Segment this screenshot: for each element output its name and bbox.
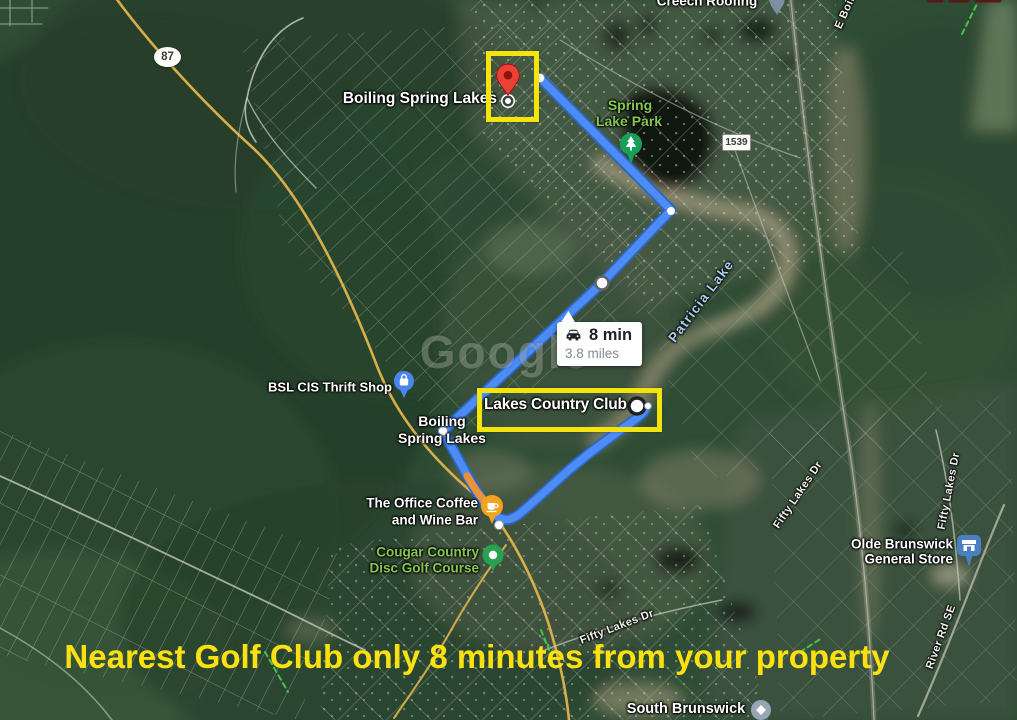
tree-icon [619,132,643,165]
property-highlight-box [486,51,539,122]
diamond-icon [750,699,772,720]
car-icon [564,328,583,343]
spring-lake-park-label-line2[interactable]: Lake Park [596,113,662,129]
disc-golf-label-line2[interactable]: Disc Golf Course [369,561,479,576]
golf-club-highlight-box [477,388,662,432]
coffee-bar-pin[interactable] [480,494,504,536]
coffee-cup-icon [480,494,504,531]
thrift-shop-label[interactable]: BSL CIS Thrift Shop [268,380,392,395]
town-label-line2[interactable]: Spring Lakes [398,430,486,446]
route-info-bubble[interactable]: 8 min 3.8 miles [557,322,642,366]
route-distance: 3.8 miles [565,346,632,361]
general-store-label-line2[interactable]: General Store [864,552,953,567]
route-duration: 8 min [589,326,632,345]
coffee-bar-label-line2[interactable]: and Wine Bar [392,513,478,528]
disc-golf-pin[interactable] [482,544,504,583]
thrift-shop-pin[interactable] [393,370,415,412]
shopping-bag-icon [393,370,415,407]
general-store-label-line1[interactable]: Olde Brunswick [851,537,953,552]
creech-roofing-pin[interactable] [768,0,786,21]
town-label-line1[interactable]: Boiling [418,413,465,429]
place-dot-icon [482,544,504,578]
south-brunswick-pin[interactable] [750,699,772,720]
coffee-bar-label-line1[interactable]: The Office Coffee [366,496,478,511]
satellite-map[interactable]: Boiling Spring Lakes Lakes Country Club … [0,0,1017,720]
route-87-shield: 87 [154,47,181,67]
storefront-icon [956,534,982,570]
general-store-pin[interactable] [956,534,982,575]
south-brunswick-label[interactable]: South Brunswick [627,701,745,717]
marketing-caption: Nearest Golf Club only 8 minutes from yo… [64,638,889,676]
route-1539-shield: 1539 [722,134,751,151]
generic-pin-icon [768,0,786,16]
spring-lake-park-pin[interactable] [619,132,643,170]
property-label[interactable]: Boiling Spring Lakes [343,90,497,108]
spring-lake-park-label-line1[interactable]: Spring [608,97,652,113]
creech-roofing-label[interactable]: Creech Roofing [657,0,758,9]
disc-golf-label-line1[interactable]: Cougar Country [376,545,479,560]
